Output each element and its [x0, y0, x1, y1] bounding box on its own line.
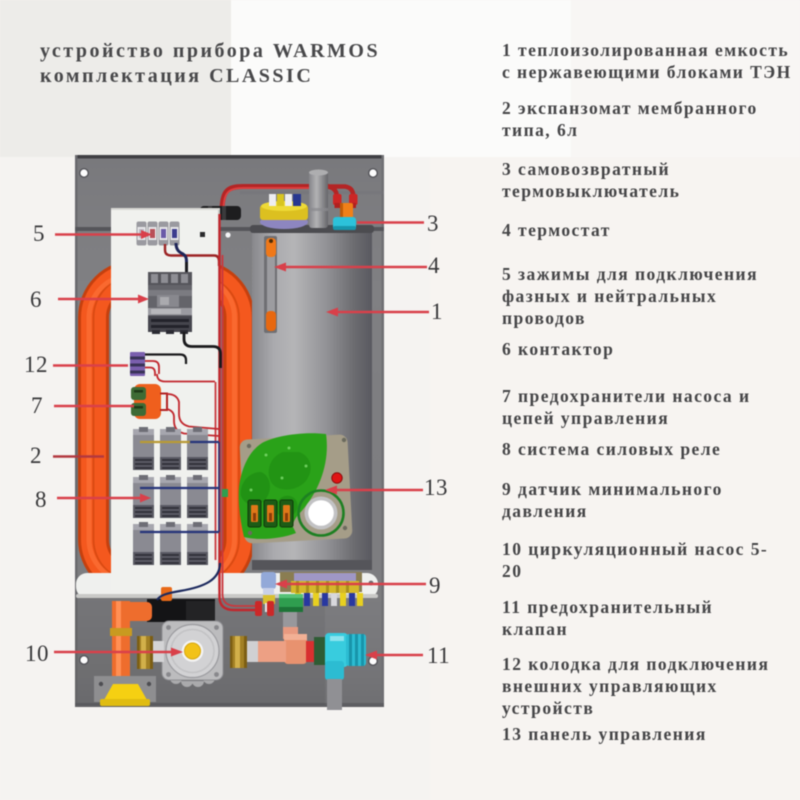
- svg-text:устройств: устройств: [502, 698, 594, 718]
- svg-text:4 термостат: 4 термостат: [502, 220, 611, 240]
- svg-text:20: 20: [502, 561, 522, 581]
- svg-text:устройство прибора WARMOS: устройство прибора WARMOS: [40, 40, 380, 62]
- svg-text:11 предохранительный: 11 предохранительный: [502, 597, 713, 617]
- svg-text:10 циркуляционный насос 5-: 10 циркуляционный насос 5-: [502, 539, 768, 559]
- svg-text:термовыключатель: термовыключатель: [502, 181, 680, 201]
- svg-text:давления: давления: [502, 501, 588, 521]
- svg-text:типа, 6л: типа, 6л: [502, 120, 578, 140]
- svg-text:7: 7: [31, 393, 43, 418]
- svg-text:2 экспанзомат мембранного: 2 экспанзомат мембранного: [502, 98, 758, 118]
- svg-text:клапан: клапан: [502, 619, 568, 639]
- svg-text:11: 11: [427, 643, 450, 668]
- svg-text:проводов: проводов: [502, 308, 586, 328]
- svg-text:1 теплоизолированная емкость: 1 теплоизолированная емкость: [502, 40, 789, 60]
- svg-text:7 предохранители насоса и: 7 предохранители насоса и: [502, 386, 750, 406]
- svg-text:9: 9: [429, 573, 441, 598]
- svg-text:4: 4: [428, 253, 440, 278]
- svg-text:3: 3: [427, 211, 439, 236]
- svg-text:5 зажимы для подключения: 5 зажимы для подключения: [502, 264, 758, 284]
- svg-text:8 система силовых реле: 8 система силовых реле: [502, 439, 721, 459]
- svg-text:с нержавеющими блоками ТЭН: с нержавеющими блоками ТЭН: [502, 62, 792, 82]
- svg-text:комплектация CLASSIC: комплектация CLASSIC: [40, 65, 313, 87]
- svg-text:6 контактор: 6 контактор: [502, 339, 614, 359]
- svg-text:5: 5: [33, 221, 45, 246]
- svg-text:цепей управления: цепей управления: [502, 408, 669, 428]
- svg-text:9 датчик минимального: 9 датчик минимального: [502, 479, 723, 499]
- svg-text:13: 13: [424, 475, 448, 500]
- svg-text:10: 10: [25, 641, 49, 666]
- svg-text:6: 6: [30, 287, 42, 312]
- svg-text:13 панель управления: 13 панель управления: [502, 724, 707, 744]
- svg-text:фазных и нейтральных: фазных и нейтральных: [502, 286, 717, 306]
- svg-text:8: 8: [35, 487, 47, 512]
- svg-text:1: 1: [431, 299, 443, 324]
- svg-text:внешних управляющих: внешних управляющих: [502, 676, 718, 696]
- svg-text:2: 2: [30, 443, 42, 468]
- svg-text:3 самовозвратный: 3 самовозвратный: [502, 159, 670, 179]
- svg-text:12 колодка для подключения: 12 колодка для подключения: [502, 654, 769, 674]
- svg-text:12: 12: [24, 352, 48, 377]
